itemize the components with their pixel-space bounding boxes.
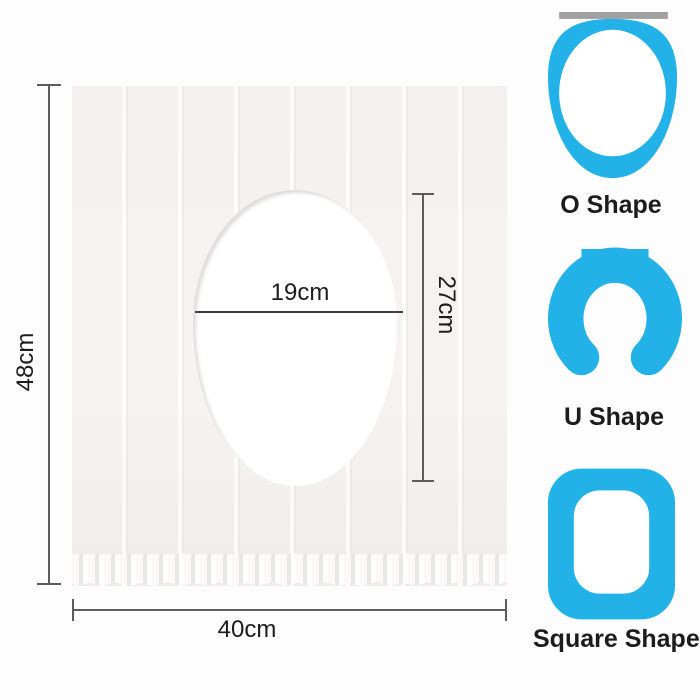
width-dimension-line (73, 609, 507, 611)
shape-option-u: U Shape (546, 244, 684, 399)
product-image: 48cm 40cm 19cm 27cm O Shape U Shape Squa… (0, 0, 700, 700)
height-dimension-label: 48cm (13, 322, 39, 402)
width-dimension-tick-left (72, 599, 74, 621)
o-shape-seat-icon (535, 12, 690, 182)
square-shape-seat-icon (548, 468, 675, 620)
u-shape-seat-icon (546, 244, 684, 394)
opening-height-dimension-label: 27cm (433, 265, 459, 345)
u-shape-label: U Shape (534, 403, 694, 432)
width-dimension-tick-right (505, 599, 507, 621)
opening-width-dimension-label: 19cm (260, 280, 340, 306)
height-dimension-tick-bottom (37, 583, 61, 585)
sheet-ruffled-edge (72, 554, 507, 586)
height-dimension-line (48, 85, 50, 585)
shape-option-o: O Shape (535, 12, 690, 187)
square-shape-label: Square Shape (533, 625, 693, 654)
seat-cover-opening (193, 190, 397, 486)
height-dimension-tick-top (37, 84, 61, 86)
opening-height-tick-top (412, 193, 434, 195)
o-shape-hinge-bar (559, 12, 668, 19)
opening-height-tick-bottom (412, 480, 434, 482)
width-dimension-label: 40cm (207, 617, 287, 643)
shape-option-square: Square Shape (548, 468, 675, 625)
o-shape-label: O Shape (531, 191, 691, 220)
opening-width-dimension-line (195, 311, 403, 313)
opening-height-dimension-line (422, 194, 424, 482)
